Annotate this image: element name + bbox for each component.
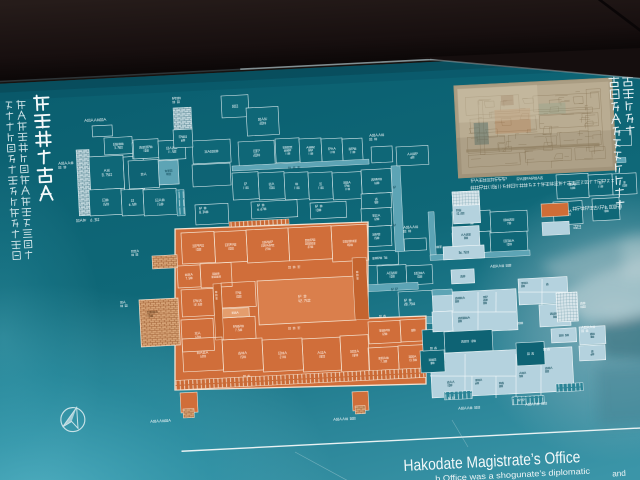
svg-text:and: and — [612, 469, 627, 479]
